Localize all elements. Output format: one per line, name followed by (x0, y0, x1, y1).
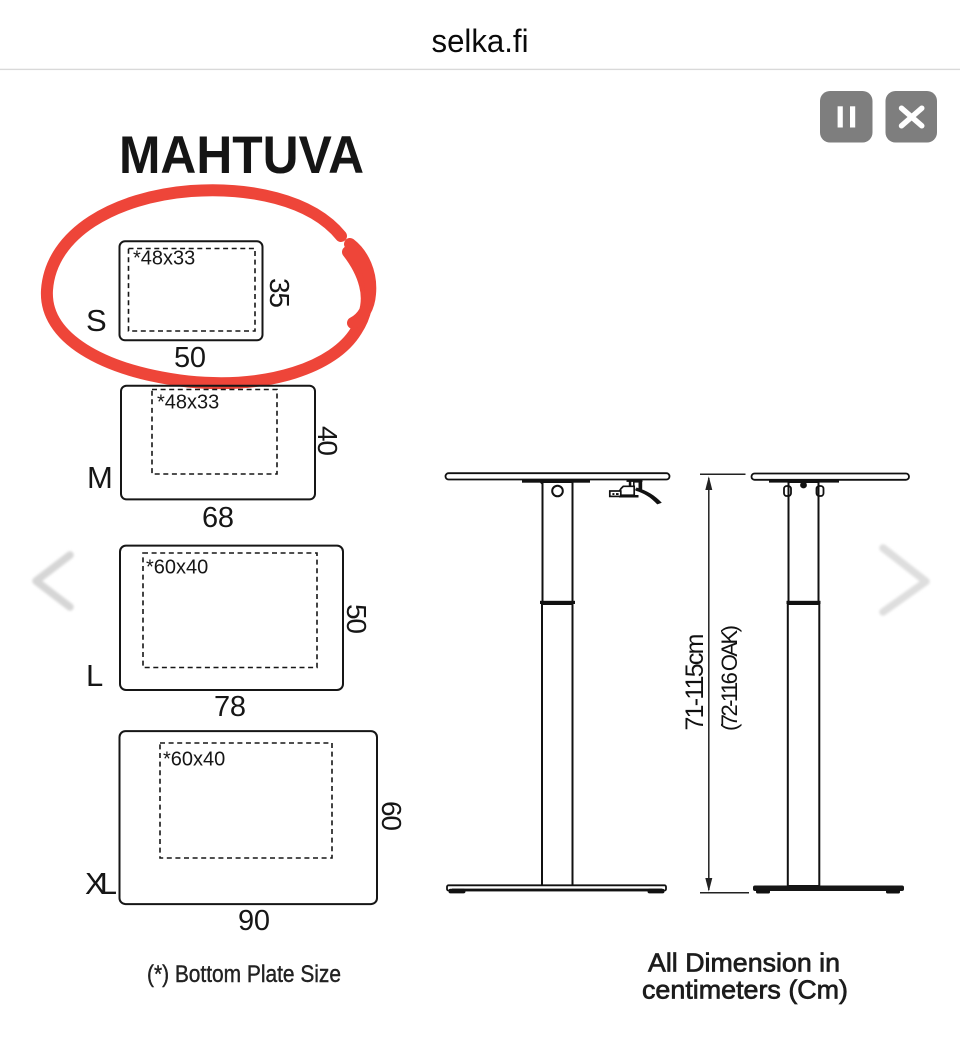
svg-text:90: 90 (238, 905, 270, 937)
svg-text:(*) Bottom Plate Size: (*) Bottom Plate Size (147, 961, 341, 988)
svg-text:centimeters (Cm): centimeters (Cm) (642, 975, 848, 1005)
svg-text:All Dimension in: All Dimension in (648, 948, 840, 978)
svg-text:*48x33: *48x33 (133, 248, 195, 270)
svg-text:selka.fi: selka.fi (432, 23, 529, 59)
svg-text:XL: XL (85, 866, 117, 901)
svg-text:78: 78 (214, 691, 246, 723)
svg-text:71-115cm: 71-115cm (681, 634, 709, 731)
svg-text:*48x33: *48x33 (157, 392, 219, 414)
svg-text:M: M (87, 460, 113, 495)
svg-text:50: 50 (174, 342, 206, 374)
svg-text:*60x40: *60x40 (163, 749, 225, 771)
svg-text:(72-116 OAK): (72-116 OAK) (717, 625, 742, 731)
svg-text:L: L (86, 658, 103, 693)
svg-text:68: 68 (202, 502, 234, 534)
svg-text:40: 40 (312, 426, 343, 456)
svg-text:*60x40: *60x40 (146, 557, 208, 579)
svg-text:MAHTUVA: MAHTUVA (119, 126, 364, 185)
svg-text:50: 50 (341, 604, 372, 634)
svg-text:60: 60 (376, 801, 407, 831)
svg-text:35: 35 (264, 278, 295, 308)
svg-text:S: S (86, 303, 107, 338)
